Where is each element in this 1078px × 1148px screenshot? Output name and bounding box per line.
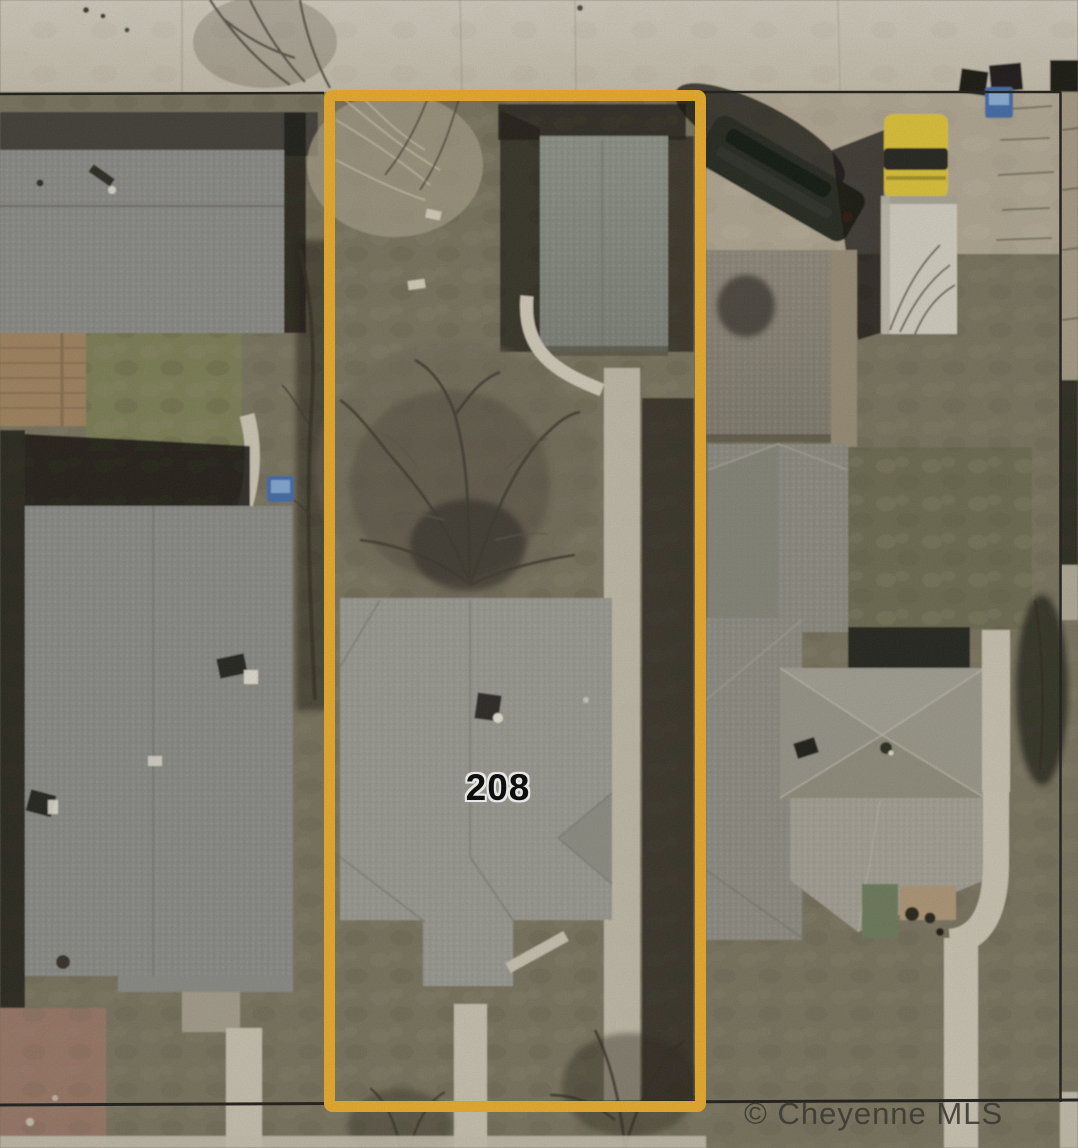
truck-windshield <box>884 148 948 170</box>
porch-object <box>905 907 919 921</box>
boundary-line-top-left <box>0 93 324 94</box>
wood-deck <box>0 333 86 426</box>
garage-shadow-left <box>500 110 540 352</box>
attribution-watermark: © Cheyenne MLS <box>744 1096 1074 1132</box>
yard-object <box>56 955 70 969</box>
front-sidewalk <box>454 1004 487 1148</box>
aerial-scene <box>0 0 1078 1148</box>
street <box>0 0 1078 92</box>
shed-side-dirt <box>831 250 857 464</box>
street-speck <box>83 7 89 13</box>
porch-green-mat <box>862 884 898 938</box>
side-shadow-strip <box>642 398 694 1110</box>
west-north-roof-darkband <box>0 112 318 156</box>
street-tree <box>193 0 337 88</box>
bottom-sidewalk-strip <box>0 1136 706 1148</box>
subject-parcel <box>307 92 700 1148</box>
shed-stain <box>717 275 775 337</box>
east-side-apron <box>982 630 1010 792</box>
aerial-photo: 208 © Cheyenne MLS <box>0 0 1078 1148</box>
truck-trailer <box>881 196 957 334</box>
blue-trash-bin-west <box>267 476 294 502</box>
east-gable-section <box>708 444 848 632</box>
garage-shadow-right <box>668 136 694 352</box>
west-porch <box>182 992 240 1032</box>
east-shed <box>706 250 857 464</box>
large-bare-tree <box>315 340 595 600</box>
parcel-number-label: 208 <box>452 767 544 809</box>
west-front-walk <box>226 1028 262 1148</box>
